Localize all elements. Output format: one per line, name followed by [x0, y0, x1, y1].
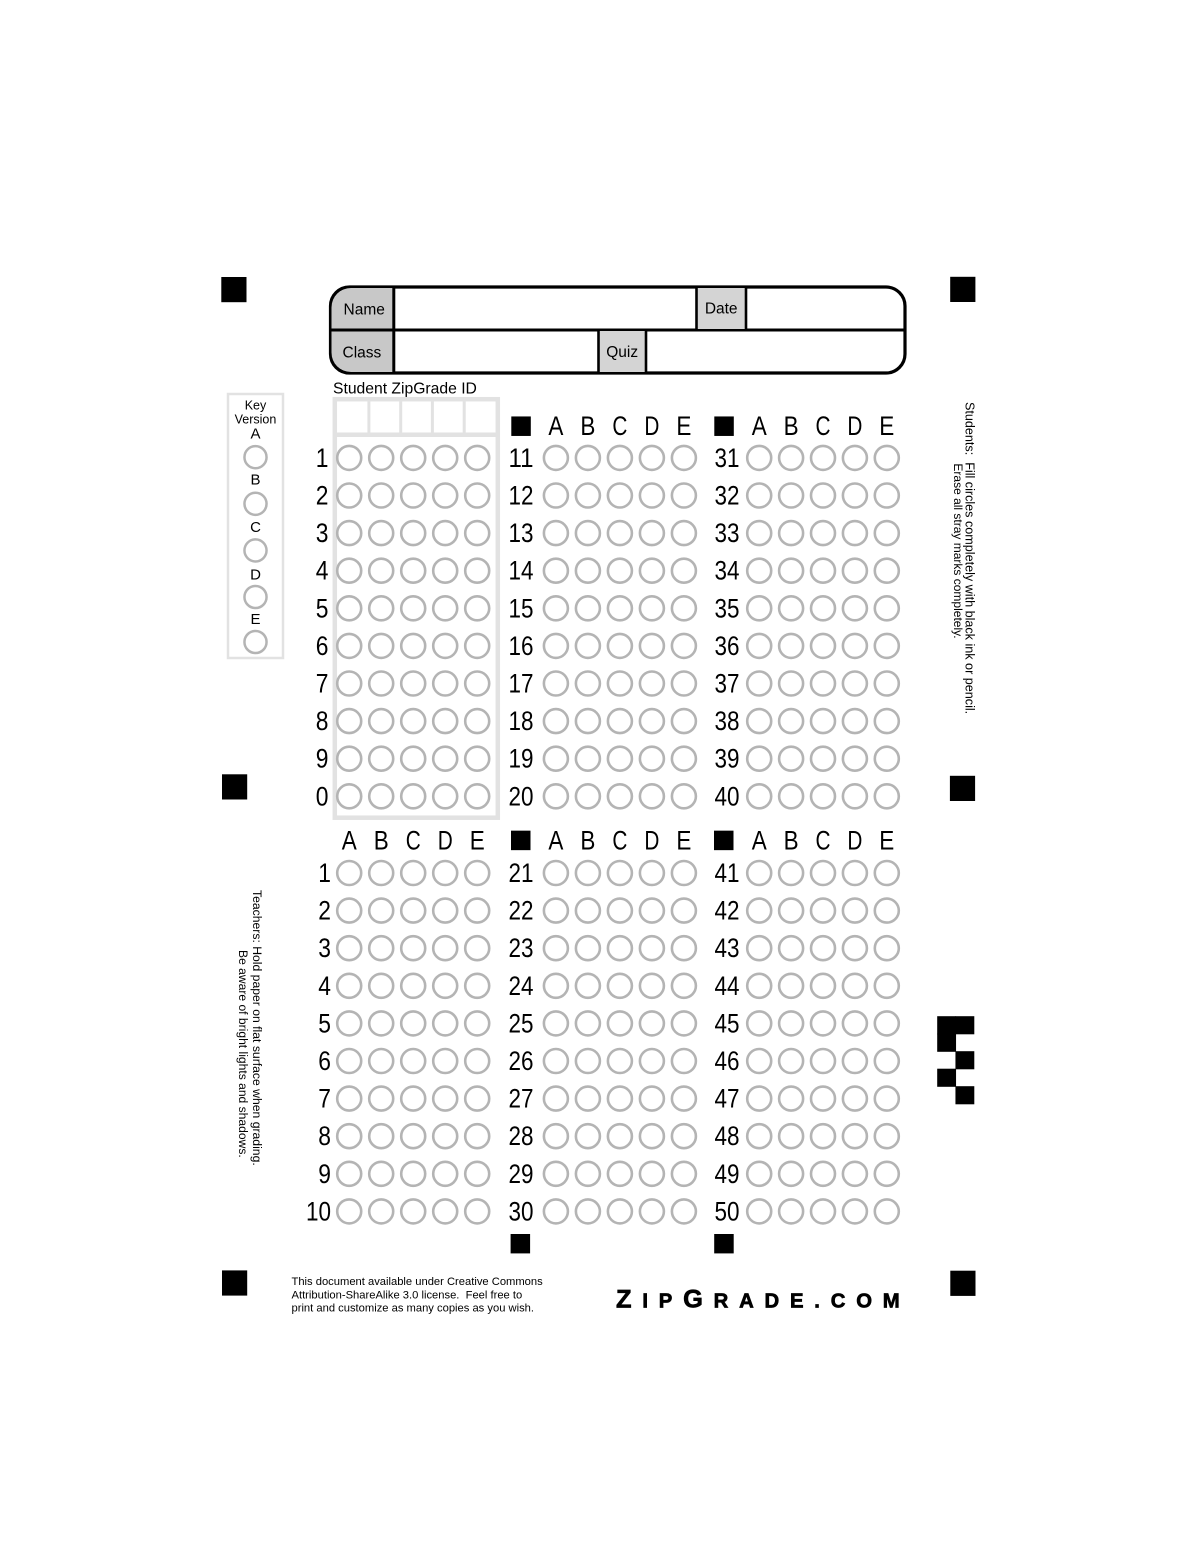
svg-text:Key: Key	[245, 399, 267, 413]
svg-text:E: E	[676, 825, 691, 855]
svg-text:5: 5	[318, 1008, 331, 1038]
svg-text:20: 20	[509, 781, 534, 811]
svg-text:A: A	[342, 825, 357, 855]
svg-text:E: E	[879, 825, 894, 855]
svg-text:29: 29	[509, 1159, 534, 1189]
svg-text:18: 18	[509, 706, 534, 736]
svg-text:E: E	[676, 411, 691, 441]
svg-text:12: 12	[509, 481, 534, 511]
svg-text:B: B	[374, 825, 389, 855]
svg-text:Attribution-ShareAlike 3.0 lic: Attribution-ShareAlike 3.0 license. Feel…	[292, 1289, 523, 1301]
svg-text:39: 39	[715, 744, 740, 774]
svg-text:A: A	[548, 411, 563, 441]
svg-text:35: 35	[715, 593, 740, 623]
svg-text:print and customize as many co: print and customize as many copies as yo…	[292, 1303, 535, 1315]
svg-text:D: D	[847, 825, 862, 855]
svg-text:13: 13	[509, 518, 534, 548]
svg-text:A: A	[548, 825, 563, 855]
svg-text:Quiz: Quiz	[606, 344, 638, 361]
svg-text:This document available under: This document available under Creative C…	[292, 1276, 544, 1288]
svg-text:C: C	[406, 825, 421, 855]
svg-text:50: 50	[715, 1196, 740, 1226]
svg-text:8: 8	[318, 1121, 331, 1151]
svg-text:D: D	[438, 825, 453, 855]
svg-text:C: C	[612, 411, 627, 441]
svg-text:C: C	[816, 825, 831, 855]
svg-text:C: C	[816, 411, 831, 441]
svg-text:7: 7	[316, 669, 329, 699]
svg-text:9: 9	[316, 744, 329, 774]
svg-text:ZIPGRADE.COM: ZIPGRADE.COM	[616, 1286, 910, 1314]
svg-text:9: 9	[318, 1159, 331, 1189]
svg-text:B: B	[784, 825, 799, 855]
svg-text:D: D	[644, 825, 659, 855]
svg-text:0: 0	[316, 781, 329, 811]
svg-text:B: B	[580, 411, 595, 441]
svg-text:15: 15	[509, 593, 534, 623]
svg-text:26: 26	[509, 1046, 534, 1076]
svg-text:10: 10	[306, 1196, 331, 1226]
svg-text:1: 1	[318, 858, 331, 888]
svg-text:4: 4	[318, 971, 331, 1001]
svg-text:Version: Version	[235, 413, 277, 427]
svg-text:44: 44	[715, 971, 740, 1001]
svg-text:33: 33	[715, 518, 740, 548]
svg-text:41: 41	[715, 858, 740, 888]
svg-text:48: 48	[715, 1121, 740, 1151]
svg-text:46: 46	[715, 1046, 740, 1076]
svg-text:Class: Class	[343, 345, 382, 362]
svg-text:2: 2	[318, 896, 331, 926]
svg-text:47: 47	[715, 1084, 740, 1114]
svg-text:Date: Date	[705, 301, 738, 318]
svg-text:D: D	[250, 566, 261, 583]
svg-text:D: D	[847, 411, 862, 441]
svg-text:19: 19	[509, 744, 534, 774]
svg-text:23: 23	[509, 933, 534, 963]
svg-text:B: B	[784, 411, 799, 441]
svg-text:34: 34	[715, 556, 740, 586]
svg-text:42: 42	[715, 896, 740, 926]
svg-text:C: C	[250, 519, 261, 536]
svg-text:28: 28	[509, 1121, 534, 1151]
svg-text:4: 4	[316, 556, 329, 586]
svg-text:E: E	[879, 411, 894, 441]
svg-text:43: 43	[715, 933, 740, 963]
svg-text:A: A	[752, 411, 767, 441]
svg-text:25: 25	[509, 1008, 534, 1038]
svg-text:3: 3	[318, 933, 331, 963]
svg-text:49: 49	[715, 1159, 740, 1189]
svg-text:30: 30	[509, 1196, 534, 1226]
svg-text:22: 22	[509, 896, 534, 926]
svg-text:6: 6	[316, 631, 329, 661]
svg-text:14: 14	[509, 556, 534, 586]
svg-text:B: B	[580, 825, 595, 855]
svg-text:40: 40	[715, 781, 740, 811]
svg-text:Student ZipGrade ID: Student ZipGrade ID	[333, 381, 477, 398]
svg-text:E: E	[250, 611, 260, 628]
svg-text:11: 11	[509, 443, 534, 473]
svg-text:C: C	[612, 825, 627, 855]
svg-text:24: 24	[509, 971, 534, 1001]
svg-text:5: 5	[316, 593, 329, 623]
svg-text:1: 1	[316, 443, 329, 473]
svg-text:2: 2	[316, 481, 329, 511]
svg-text:Erase all stray marks complete: Erase all stray marks completely.	[951, 463, 965, 638]
svg-text:Teachers: Hold paper on flat s: Teachers: Hold paper on flat surface whe…	[250, 890, 264, 1166]
svg-text:7: 7	[318, 1084, 331, 1114]
svg-text:17: 17	[509, 669, 534, 699]
svg-text:38: 38	[715, 706, 740, 736]
svg-text:A: A	[752, 825, 767, 855]
svg-text:Name: Name	[344, 302, 385, 319]
svg-text:27: 27	[509, 1084, 534, 1114]
svg-text:3: 3	[316, 518, 329, 548]
svg-text:31: 31	[715, 443, 740, 473]
svg-text:D: D	[644, 411, 659, 441]
svg-text:6: 6	[318, 1046, 331, 1076]
svg-text:A: A	[250, 426, 260, 443]
svg-text:21: 21	[509, 858, 534, 888]
svg-text:37: 37	[715, 669, 740, 699]
svg-text:45: 45	[715, 1008, 740, 1038]
svg-text:36: 36	[715, 631, 740, 661]
svg-text:E: E	[470, 825, 485, 855]
svg-text:B: B	[250, 471, 260, 488]
svg-text:Be aware of bright lights and: Be aware of bright lights and shadows.	[236, 950, 250, 1158]
svg-text:16: 16	[509, 631, 534, 661]
svg-text:32: 32	[715, 481, 740, 511]
svg-text:8: 8	[316, 706, 329, 736]
